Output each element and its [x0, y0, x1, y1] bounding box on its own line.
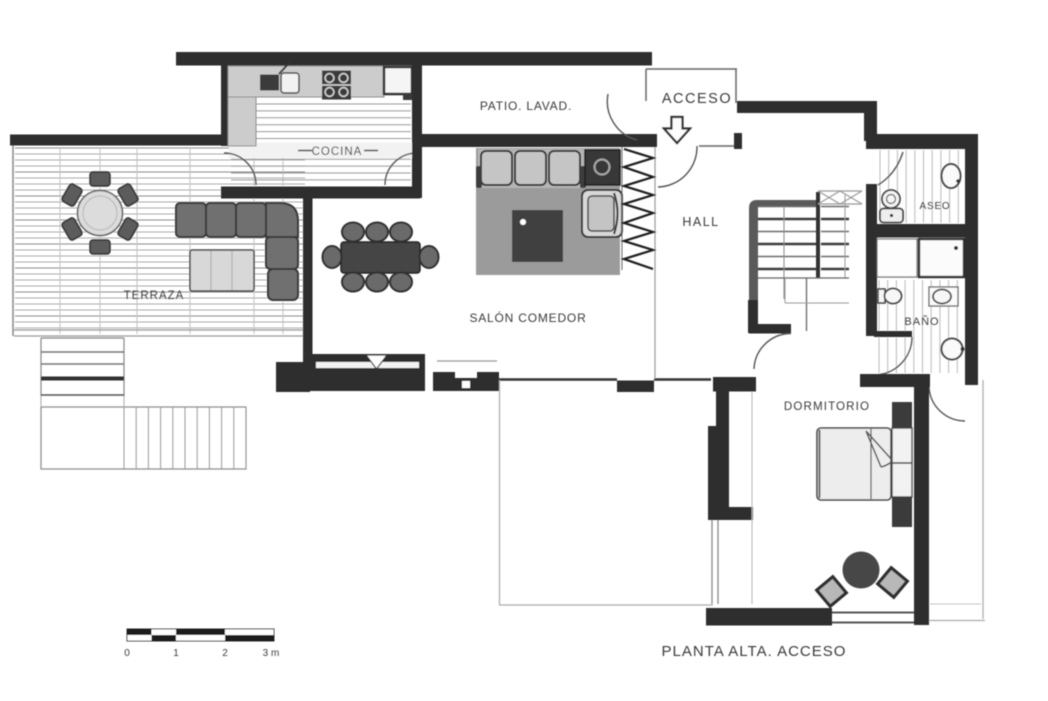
svg-text:PATIO. LAVAD.: PATIO. LAVAD. — [480, 99, 572, 113]
svg-text:3 m: 3 m — [263, 648, 280, 659]
svg-text:DORMITORIO: DORMITORIO — [784, 400, 870, 413]
svg-text:BAÑO: BAÑO — [904, 315, 939, 328]
svg-text:COCINA: COCINA — [312, 146, 363, 158]
svg-text:SALÓN COMEDOR: SALÓN COMEDOR — [469, 310, 586, 325]
svg-text:ACCESO: ACCESO — [662, 91, 732, 107]
svg-text:PLANTA ALTA. ACCESO: PLANTA ALTA. ACCESO — [662, 643, 847, 660]
svg-text:ASEO: ASEO — [920, 201, 951, 212]
svg-text:1: 1 — [173, 648, 179, 659]
svg-text:0: 0 — [124, 648, 130, 659]
svg-text:HALL: HALL — [682, 215, 719, 229]
svg-text:2: 2 — [222, 648, 228, 659]
svg-text:TERRAZA: TERRAZA — [124, 290, 185, 302]
